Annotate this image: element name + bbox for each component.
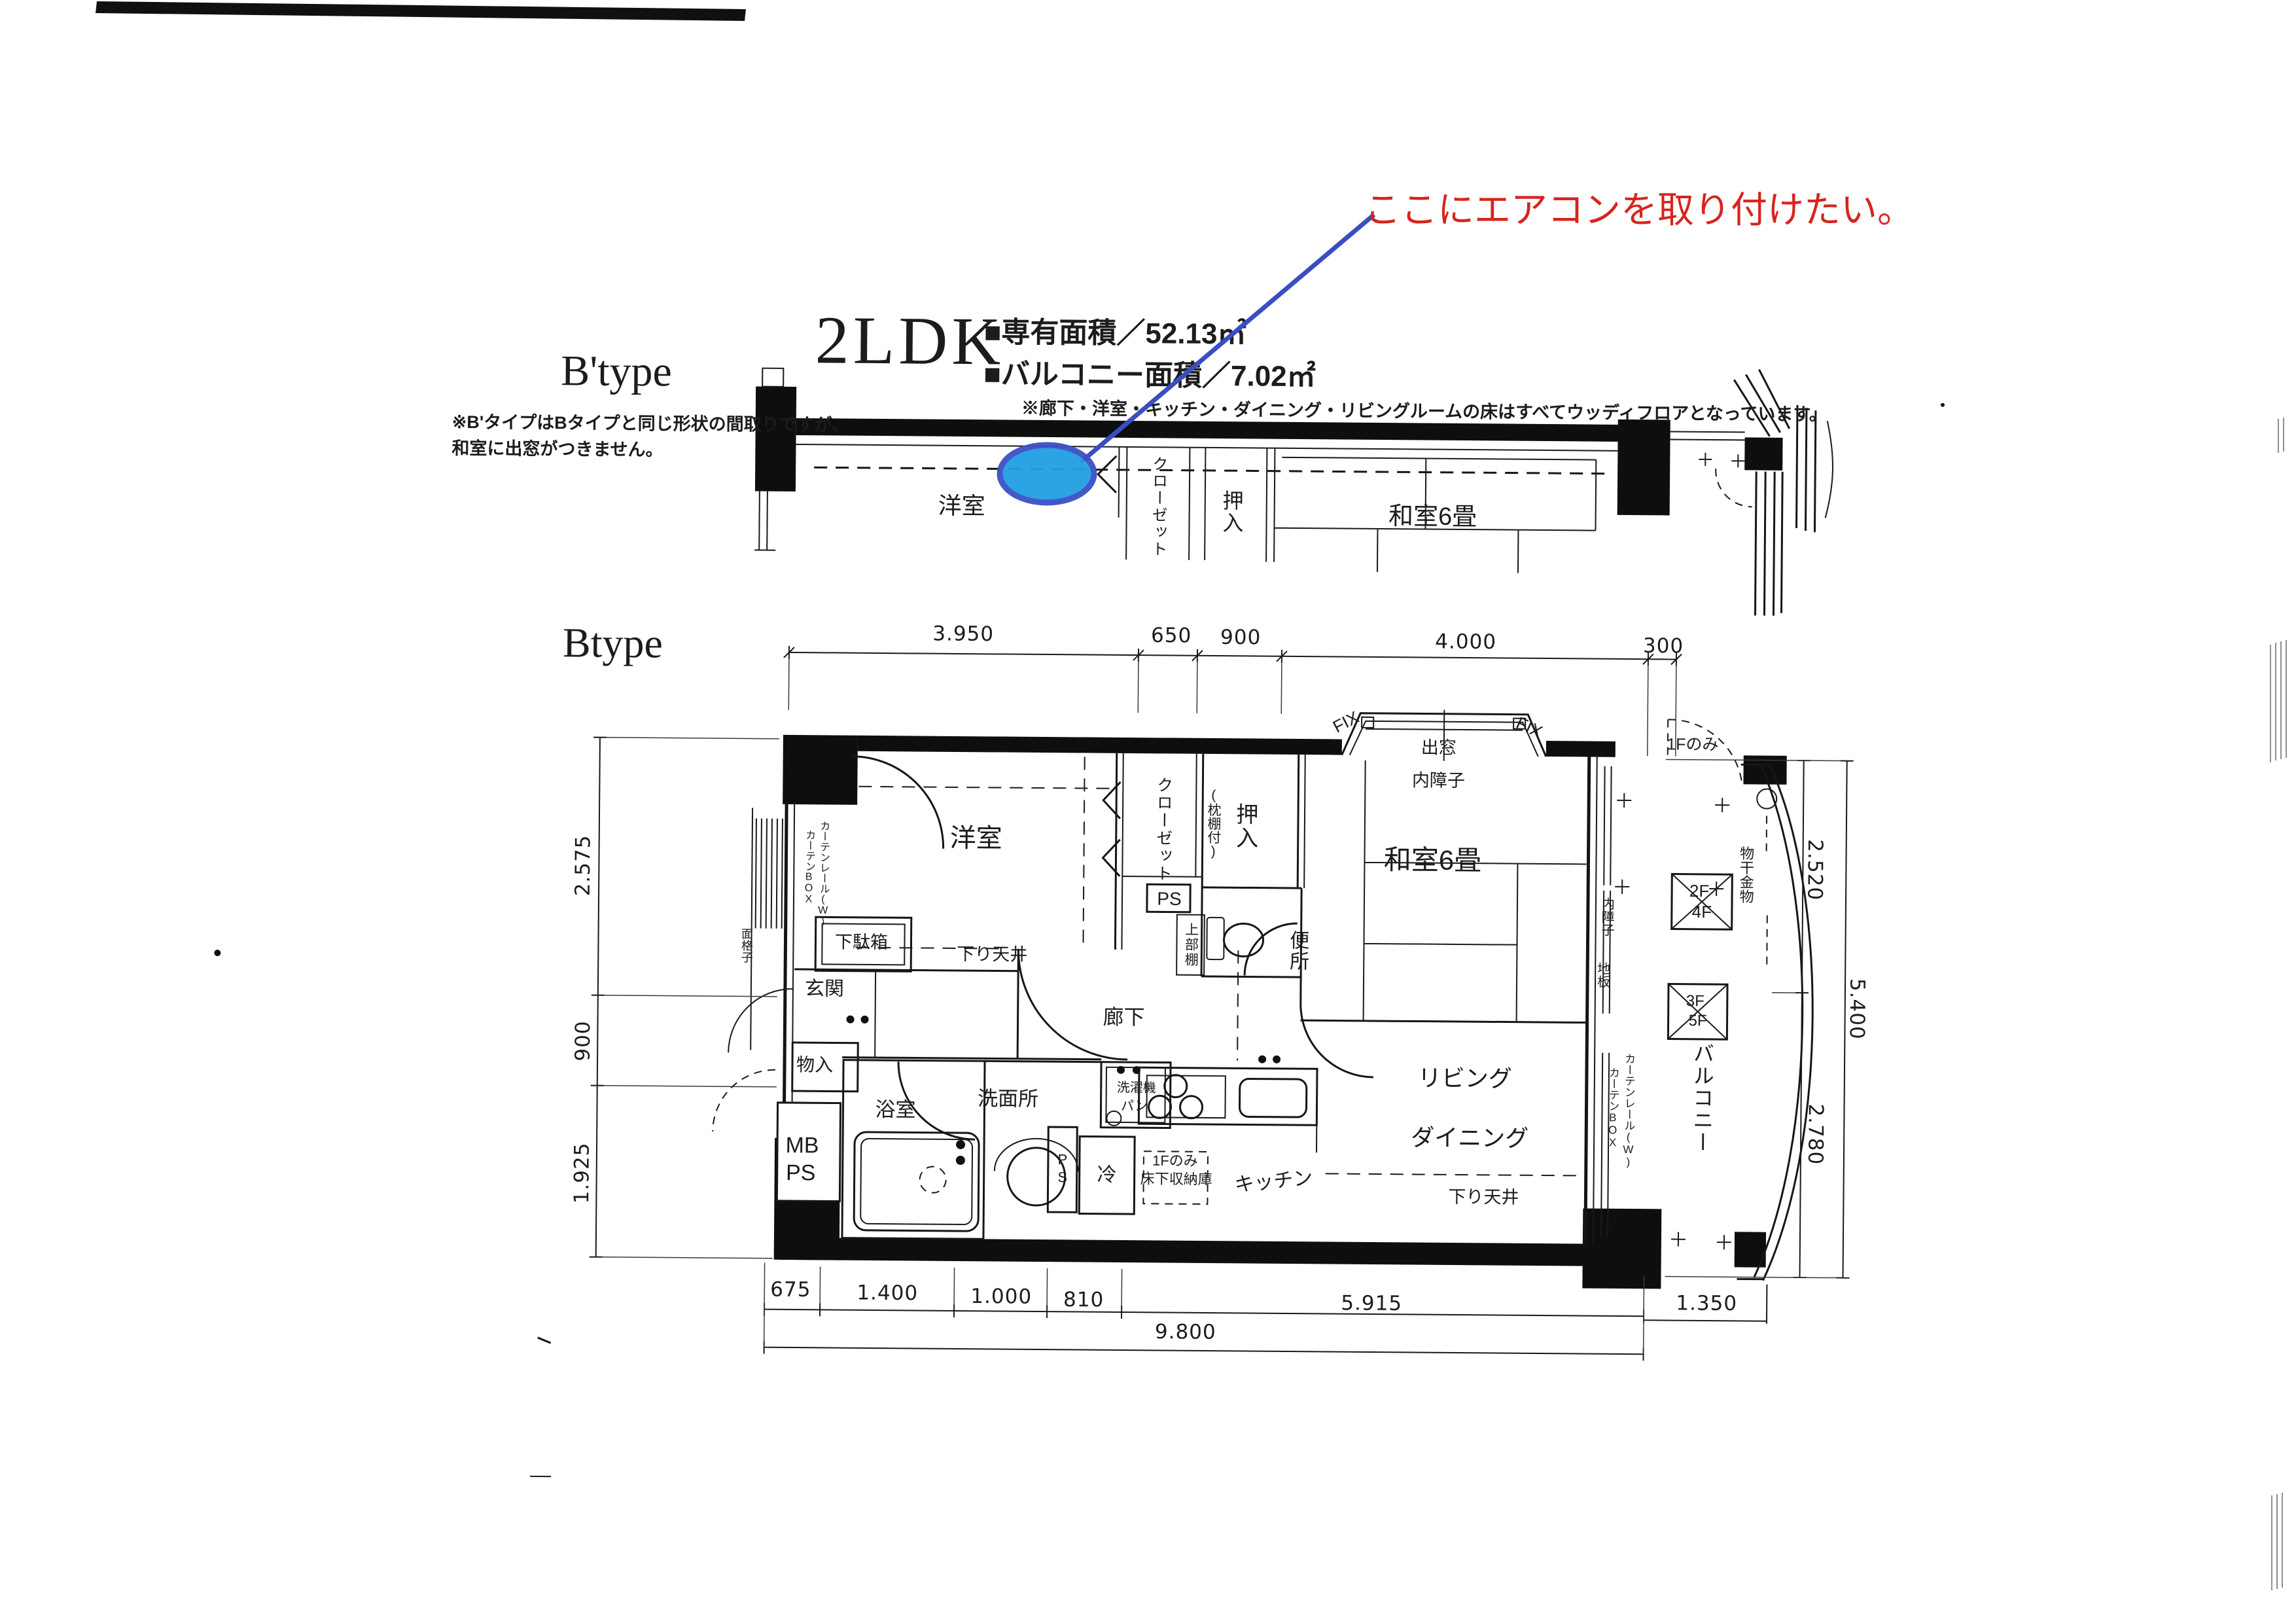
paper-edge-artifacts xyxy=(2270,418,2286,1590)
scan-edge-artifact xyxy=(96,1,746,21)
annotation-overlay xyxy=(0,0,2296,1623)
annotation-text: ここにエアコンを取り付けたい。 xyxy=(1364,191,1914,230)
aircon-location-marker[interactable] xyxy=(1000,445,1094,503)
scanned-floorplan-sheet: 2LDK ■専有面積／52.13㎡ ■バルコニー面積／7.02㎡ ※廊下・洋室・… xyxy=(0,0,2296,1623)
annotation-pointer-line[interactable] xyxy=(1081,215,1374,462)
